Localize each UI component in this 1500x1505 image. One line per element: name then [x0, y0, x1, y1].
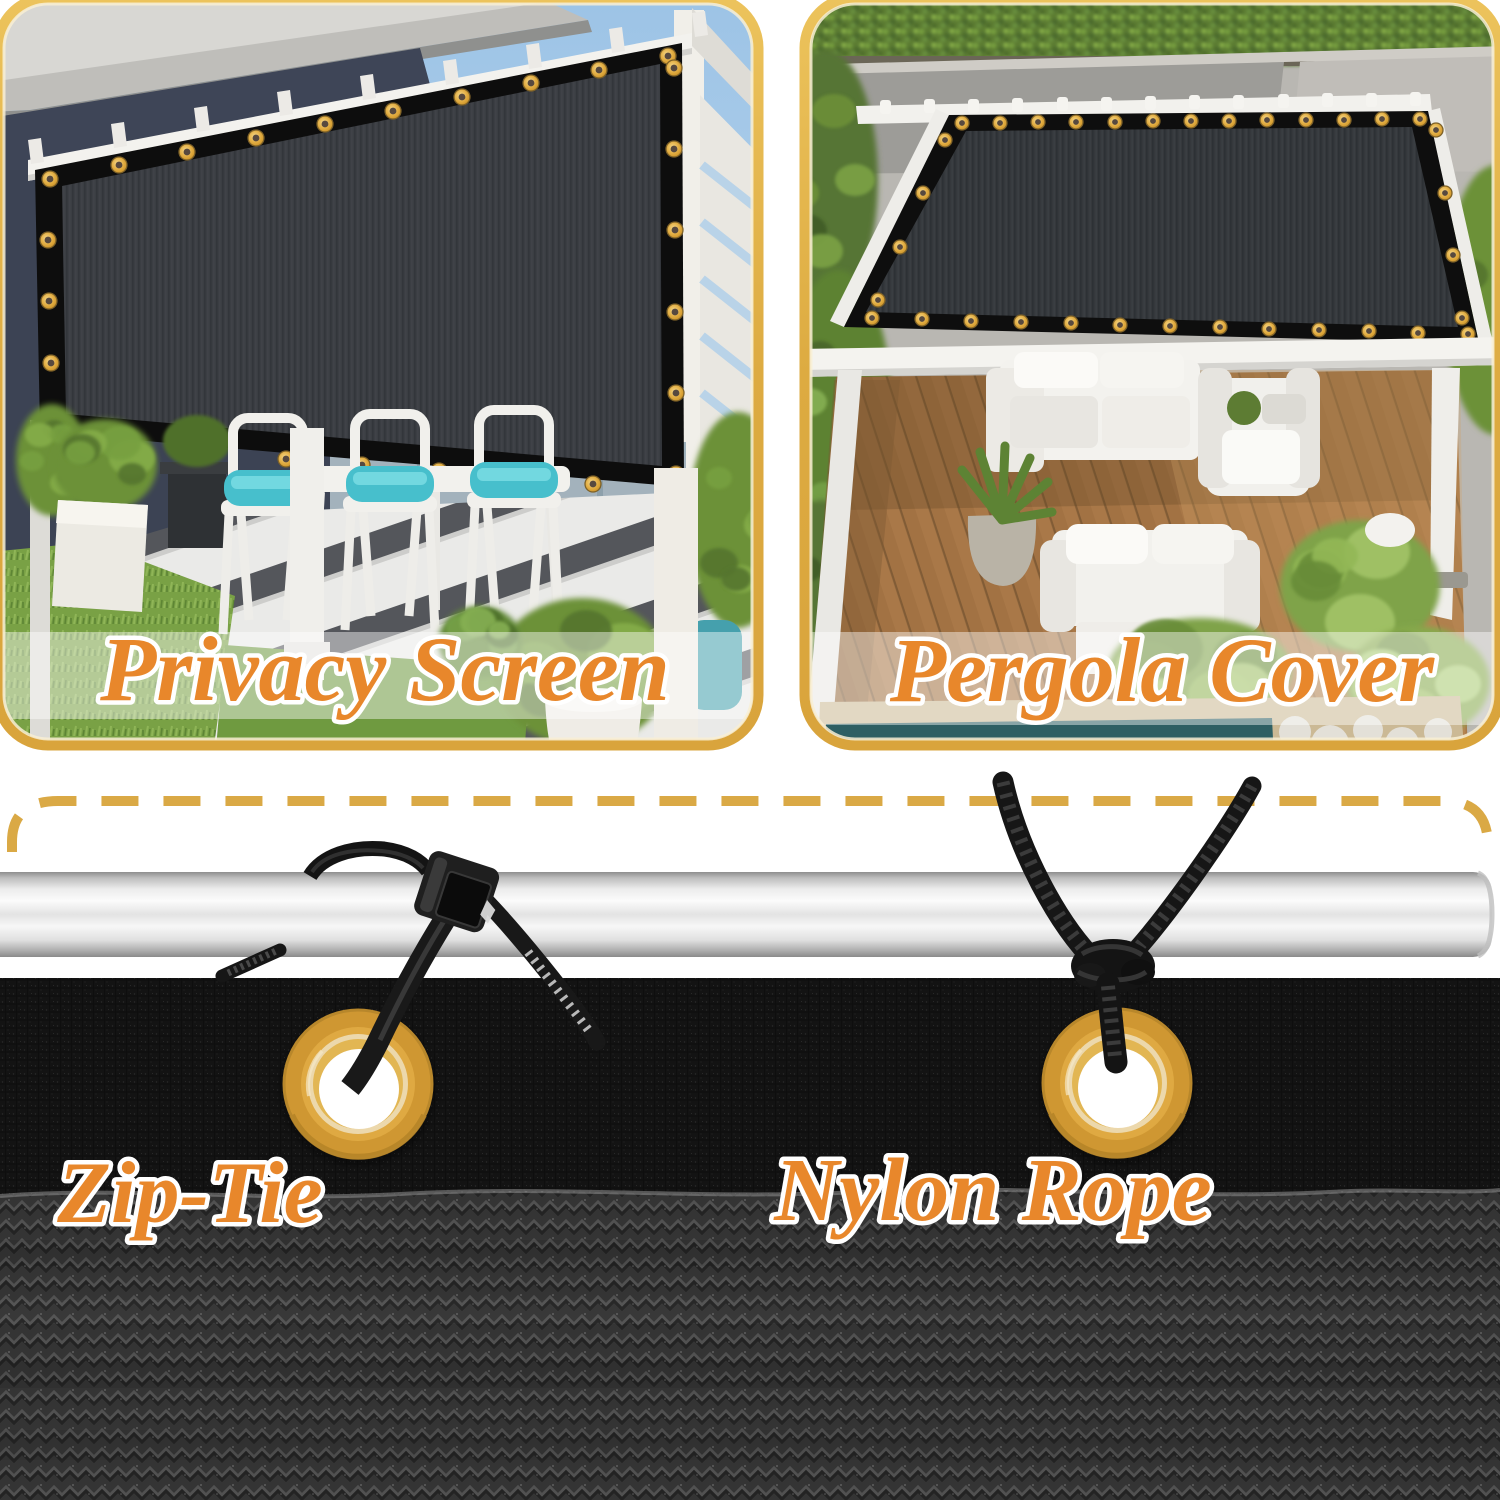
svg-text:Privacy Screen: Privacy Screen — [99, 618, 670, 720]
svg-text:Zip-Tie: Zip-Tie — [56, 1145, 323, 1242]
svg-text:Nylon Rope: Nylon Rope — [773, 1141, 1211, 1240]
svg-text:Pergola Cover: Pergola Cover — [889, 619, 1435, 721]
